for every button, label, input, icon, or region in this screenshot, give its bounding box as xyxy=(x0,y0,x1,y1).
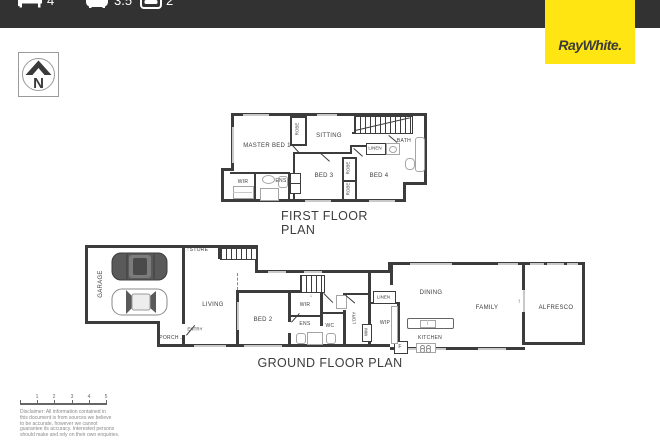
scale-number: 2 xyxy=(53,394,56,400)
scale-tick xyxy=(89,400,90,405)
scale-number: 3 xyxy=(71,394,74,400)
wardrobe-shelves xyxy=(233,186,254,199)
window xyxy=(194,345,226,347)
window xyxy=(498,263,518,265)
car-icon xyxy=(140,0,162,9)
post xyxy=(544,262,547,265)
toilet xyxy=(405,158,415,170)
scale-line xyxy=(20,403,107,405)
alfresco-arrow-icon: ↑ xyxy=(518,299,521,305)
room-label-ens: ENS xyxy=(275,178,286,184)
bed-icon xyxy=(18,0,42,9)
wall xyxy=(350,145,352,154)
scale-tick xyxy=(37,400,38,405)
room-label-wc: WC xyxy=(326,323,335,329)
scale-number: 1 xyxy=(36,394,39,400)
room-label-bed3: BED 3 xyxy=(315,173,334,179)
disclaimer: Disclaimer: All information contained in… xyxy=(20,410,150,439)
room-label-family: FAMILY xyxy=(476,305,499,311)
room-label-bed4: BED 4 xyxy=(370,173,389,179)
scale-tick xyxy=(72,400,73,405)
room-label-bed2: BED 2 xyxy=(254,317,273,323)
wall xyxy=(403,182,427,185)
room-label-entry: ENTRY xyxy=(187,326,202,331)
raywhite-logo: RayWhite. xyxy=(545,0,635,64)
first-floor-plan: MASTER BED 1 SITTING BATH LINEN ROBE ROB… xyxy=(221,113,431,231)
wall xyxy=(221,168,224,202)
room-label-linen: LINEN xyxy=(377,294,390,299)
wall xyxy=(182,245,185,324)
room-label-sitting: SITTING xyxy=(316,133,342,139)
wall xyxy=(288,333,291,344)
room-label-laundry: L'DRY xyxy=(352,312,357,325)
wall xyxy=(85,321,160,324)
wall xyxy=(254,172,256,201)
window xyxy=(369,200,395,202)
compass-north-icon: N xyxy=(18,52,59,97)
basin xyxy=(389,146,397,153)
window xyxy=(243,114,269,116)
room-label-wip: WIP xyxy=(380,320,390,326)
closet xyxy=(290,183,301,194)
door-swing xyxy=(323,293,333,303)
window xyxy=(317,114,337,116)
burner xyxy=(426,348,431,353)
window xyxy=(305,200,331,202)
tub xyxy=(336,295,347,309)
car-top-view-dark xyxy=(111,250,168,283)
toilet xyxy=(296,333,306,344)
window xyxy=(478,348,506,350)
wall xyxy=(525,342,585,345)
stairs xyxy=(220,248,257,260)
wall xyxy=(320,290,323,326)
wall xyxy=(522,312,525,345)
bathtub xyxy=(415,137,425,172)
porch-arrow-icon: → xyxy=(179,335,185,341)
wall xyxy=(403,182,406,202)
window xyxy=(244,345,282,347)
room-label-wir: WIR xyxy=(300,302,311,308)
shelf-line xyxy=(233,192,252,193)
ground-floor-title: GROUND FLOOR PLAN xyxy=(257,356,402,370)
wall xyxy=(343,310,346,344)
scale-tick xyxy=(106,400,107,405)
room-label-kitchen: KITCHEN xyxy=(418,335,442,341)
sink xyxy=(420,320,436,328)
scale-tick xyxy=(20,400,21,405)
toilet xyxy=(326,333,336,344)
bed-count: 4 xyxy=(47,0,54,8)
pantry-shelves xyxy=(391,306,398,344)
scale-number: 4 xyxy=(88,394,91,400)
room-label-fridge: F xyxy=(398,344,401,350)
post xyxy=(564,262,567,265)
wall xyxy=(323,312,345,314)
window xyxy=(237,302,239,330)
room-label-linen: LINEN xyxy=(368,146,381,151)
room-label-living: LIVING xyxy=(202,302,223,308)
basin xyxy=(262,175,275,184)
bath-icon xyxy=(84,0,110,8)
window xyxy=(530,263,578,265)
room-label-wir: WIR xyxy=(238,179,249,185)
disclaimer-line: should make and rely on their own enquir… xyxy=(20,433,150,439)
room-label-wm: WM xyxy=(364,328,369,336)
shower xyxy=(307,332,323,345)
sink-divider xyxy=(427,320,428,325)
room-label-store: STORE xyxy=(190,247,209,253)
compass-letter: N xyxy=(33,75,44,92)
ground-floor-plan: ↑ → ↑ ↓ GARAGE STORE LIVING ENTRY PORCH … xyxy=(78,240,594,380)
car-count: 2 xyxy=(166,0,173,8)
room-label-master-bed: MASTER BED 1 xyxy=(243,143,291,149)
stairs xyxy=(300,275,325,293)
bath-count: 3.5 xyxy=(114,0,132,8)
dashed-line xyxy=(237,273,238,290)
scale-bar: 1 2 3 4 5 xyxy=(20,395,112,409)
opening xyxy=(523,290,525,312)
room-label-ens: ENS xyxy=(299,321,310,327)
window xyxy=(268,271,286,273)
wall xyxy=(288,293,291,322)
room-label-bath: BATH xyxy=(397,138,411,144)
room-label-porch: PORCH xyxy=(159,335,179,341)
shower xyxy=(260,188,279,201)
room-label-robe: ROBE xyxy=(294,123,299,136)
floorplan-page: 4 3.5 2 RayWhite. N xyxy=(0,0,660,440)
window xyxy=(232,127,234,163)
first-floor-title: FIRST FLOOR PLAN xyxy=(281,209,381,237)
raywhite-logo-text: RayWhite. xyxy=(545,37,635,53)
wall xyxy=(343,293,371,295)
wall xyxy=(582,265,585,345)
window xyxy=(304,271,322,273)
car-top-view-light xyxy=(111,287,168,317)
room-label-garage: GARAGE xyxy=(98,270,104,297)
wall xyxy=(522,265,525,290)
scale-number: 5 xyxy=(105,394,108,400)
room-label-robe: ROBE xyxy=(345,182,350,195)
scale-tick xyxy=(54,400,55,405)
room-label-alfresco: ALFRESCO xyxy=(539,305,574,311)
wall xyxy=(85,245,88,324)
door-swing xyxy=(353,148,363,157)
room-label-robe: ROBE xyxy=(345,161,350,174)
burner xyxy=(420,348,425,353)
room-label-dining: DINING xyxy=(420,290,443,296)
wall xyxy=(230,172,290,174)
door-swing xyxy=(320,153,330,162)
stairs-arrow-icon: ↓ xyxy=(310,293,313,299)
window xyxy=(410,263,452,265)
wall xyxy=(390,265,393,285)
